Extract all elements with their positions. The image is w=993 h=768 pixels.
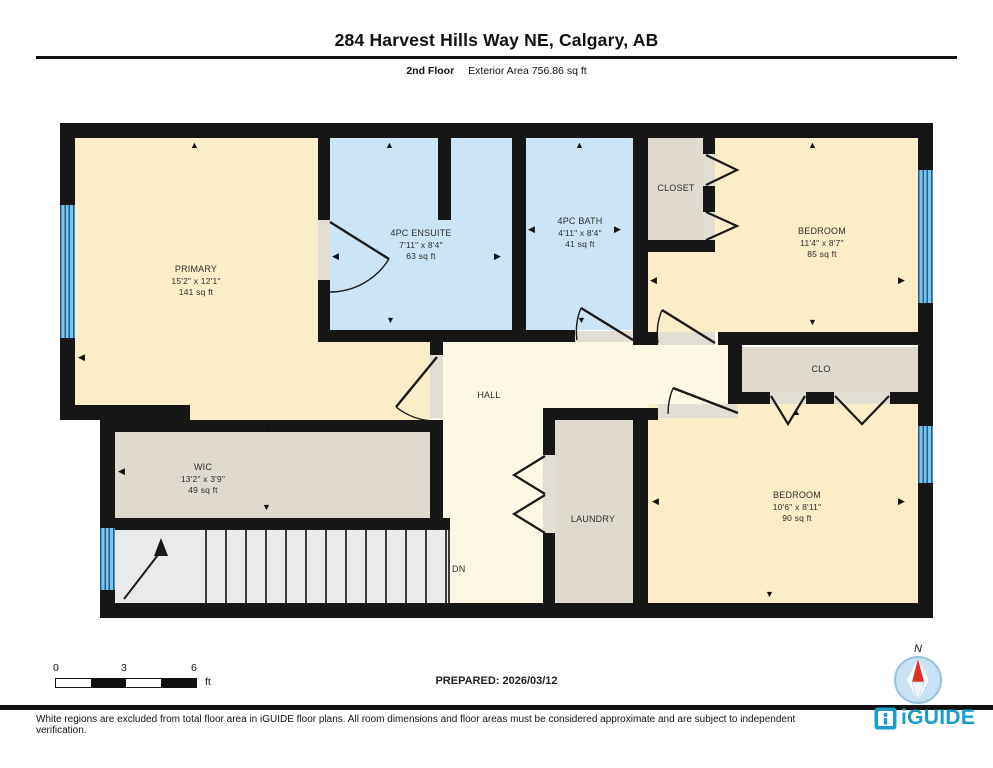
measure-arrow-left: ◀	[652, 497, 659, 506]
door-arc	[396, 407, 437, 421]
compass-north-label: N	[914, 643, 922, 655]
iguide-logo: iGUIDE	[874, 706, 975, 730]
measure-arrow-up: ▲	[190, 141, 199, 150]
measure-arrow-right: ▶	[898, 276, 905, 285]
measure-arrow-up: ▲	[264, 421, 273, 430]
iguide-logo-text: iGUIDE	[901, 706, 975, 730]
wic-label: WIC 13'2" x 3'9" 49 sq ft	[123, 462, 283, 496]
hall-label: HALL	[449, 390, 529, 402]
bifold-door	[514, 456, 545, 494]
measure-arrow-down: ▼	[808, 318, 817, 327]
iguide-logo-icon	[874, 707, 897, 730]
door-leaf	[673, 388, 738, 413]
measure-arrow-right: ▶	[614, 225, 621, 234]
measure-arrow-down: ▼	[577, 316, 586, 325]
closet-label: CLOSET	[636, 183, 716, 195]
bath-label: 4PC BATH 4'11" x 8'4" 41 sq ft	[500, 216, 660, 250]
bedroom-bottom-label: BEDROOM 10'6" x 8'11" 90 sq ft	[717, 490, 877, 524]
primary-label: PRIMARY 15'2" x 12'1" 141 sq ft	[116, 264, 276, 298]
scale-tick-0: 0	[53, 662, 59, 674]
bedroom-top-label: BEDROOM 11'4" x 8'7" 85 sq ft	[742, 226, 902, 260]
measure-arrow-left: ◀	[332, 252, 339, 261]
bifold-door	[514, 495, 545, 533]
door-arc	[668, 388, 673, 414]
door-leaf	[662, 310, 715, 343]
measure-arrow-right: ▶	[494, 252, 501, 261]
ensuite-label: 4PC ENSUITE 7'11" x 8'4" 63 sq ft	[341, 228, 501, 262]
footer-divider-bar	[0, 705, 993, 710]
measure-arrow-left: ◀	[650, 276, 657, 285]
compass: N	[892, 640, 944, 706]
floorplan-page: 284 Harvest Hills Way NE, Calgary, AB 2n…	[0, 0, 993, 768]
door-arc	[657, 310, 662, 343]
stair-direction-line	[124, 551, 161, 599]
bifold-door	[706, 155, 737, 185]
door-symbols-overlay	[0, 0, 993, 768]
bifold-door	[706, 212, 737, 240]
measure-arrow-down: ▼	[262, 503, 271, 512]
prepared-date: PREPARED: 2026/03/12	[0, 675, 993, 687]
measure-arrow-left: ◀	[78, 353, 85, 362]
measure-arrow-up: ▲	[575, 141, 584, 150]
bifold-door	[835, 396, 889, 424]
measure-arrow-down: ▼	[386, 316, 395, 325]
measure-arrow-right: ▶	[898, 497, 905, 506]
laundry-label: LAUNDRY	[553, 514, 633, 526]
measure-arrow-up: ▲	[792, 408, 801, 417]
door-arc	[330, 259, 389, 292]
scale-tick-3: 3	[121, 662, 127, 674]
measure-arrow-up: ▲	[808, 141, 817, 150]
clo-label: CLO	[781, 364, 861, 376]
measure-arrow-up: ▲	[385, 141, 394, 150]
stairs-dn-label: DN	[452, 564, 482, 576]
measure-arrow-down: ▼	[765, 590, 774, 599]
door-leaf	[396, 357, 437, 407]
stair-direction-arrow	[154, 538, 168, 556]
scale-tick-6: 6	[191, 662, 197, 674]
measure-arrow-left: ◀	[528, 225, 535, 234]
door-leaf	[581, 308, 633, 340]
disclaimer-text: White regions are excluded from total fl…	[36, 714, 826, 736]
measure-arrow-left: ◀	[118, 467, 125, 476]
